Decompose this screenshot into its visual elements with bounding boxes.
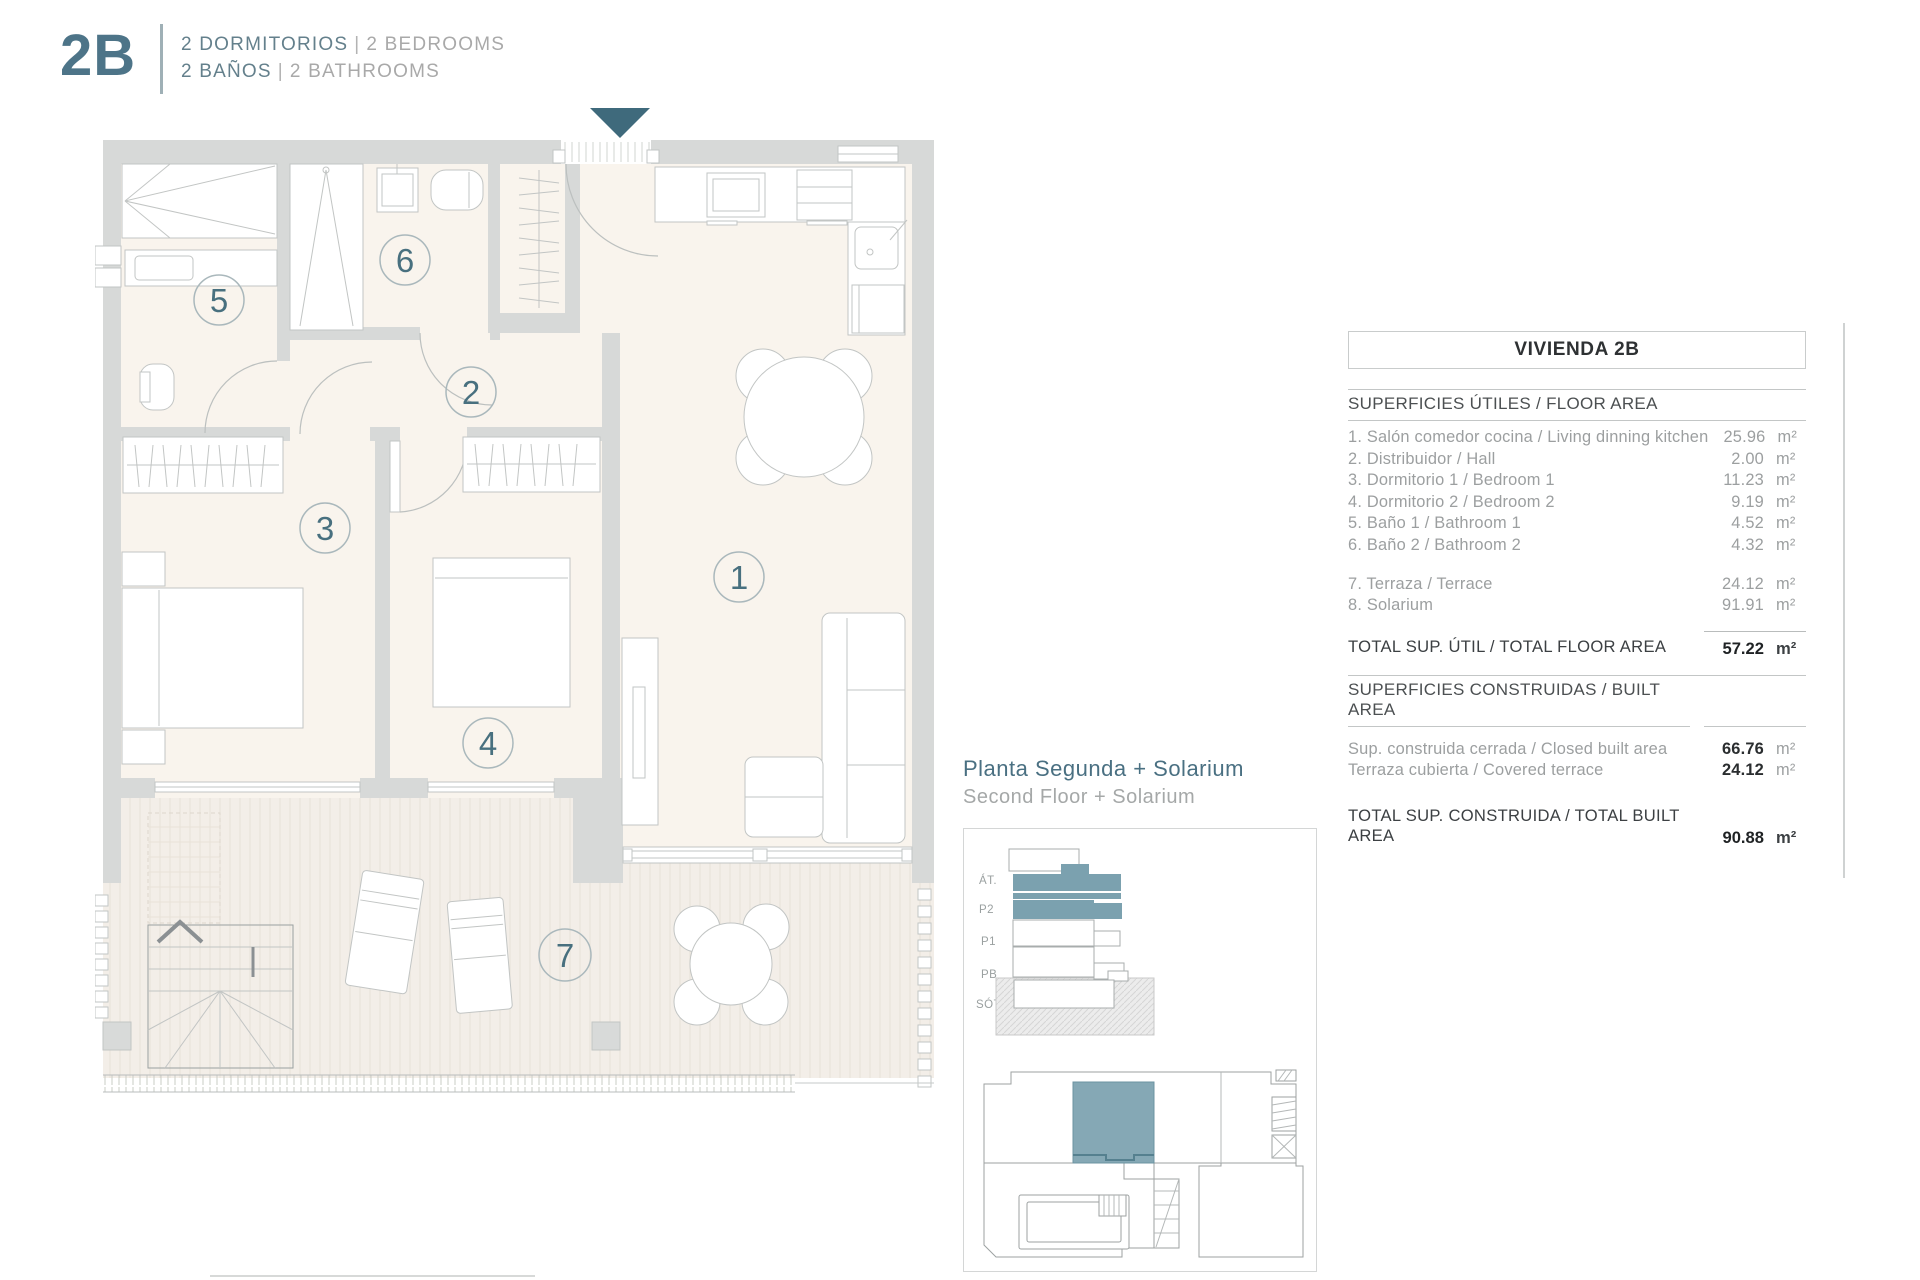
area-row: Terraza cubierta / Covered terrace24.12m… bbox=[1348, 760, 1806, 782]
area-row-label: Sup. construida cerrada / Closed built a… bbox=[1348, 739, 1704, 761]
floor-total-value: 57.22 bbox=[1704, 639, 1764, 659]
separator: | bbox=[272, 61, 290, 82]
area-row-label: 5. Baño 1 / Bathroom 1 bbox=[1348, 513, 1704, 535]
area-row: 1. Salón comedor cocina / Living dinning… bbox=[1348, 427, 1806, 449]
room-label-4: 4 bbox=[479, 725, 497, 762]
built-area-title-text: SUPERFICIES CONSTRUIDAS / BUILT AREA bbox=[1348, 680, 1690, 727]
floor-total-label: TOTAL SUP. ÚTIL / TOTAL FLOOR AREA bbox=[1348, 637, 1704, 659]
floor-plan-svg: 1 2 3 4 5 6 7 bbox=[95, 100, 955, 1100]
header-divider bbox=[160, 24, 163, 94]
room-label-6: 6 bbox=[396, 242, 414, 279]
area-row-value: 25.96 bbox=[1708, 427, 1765, 449]
dining-table bbox=[736, 349, 872, 485]
floor-total-unit: m² bbox=[1764, 639, 1806, 659]
room-label-3: 3 bbox=[316, 510, 334, 547]
area-row-value: 4.32 bbox=[1704, 535, 1764, 557]
area-row-unit: m² bbox=[1764, 574, 1806, 596]
area-row: 3. Dormitorio 1 / Bedroom 111.23m² bbox=[1348, 470, 1806, 492]
building-section: ÁT. P2 P1 PB SÓT. bbox=[974, 841, 1179, 1056]
area-row-unit: m² bbox=[1764, 470, 1806, 492]
entrance-arrow-icon bbox=[590, 108, 650, 138]
floor-name-en: Second Floor + Solarium bbox=[963, 783, 1244, 811]
room-label-7: 7 bbox=[556, 937, 574, 974]
location-diagrams: ÁT. P2 P1 PB SÓT. bbox=[963, 828, 1317, 1272]
area-row-value: 24.12 bbox=[1704, 574, 1764, 596]
built-total-row: TOTAL SUP. CONSTRUIDA / TOTAL BUILT AREA… bbox=[1348, 806, 1806, 848]
area-row: 4. Dormitorio 2 / Bedroom 29.19m² bbox=[1348, 492, 1806, 514]
floor-plan: 1 2 3 4 5 6 7 bbox=[95, 100, 955, 1100]
panel-title: VIVIENDA 2B bbox=[1348, 331, 1806, 369]
bedroom1-furniture bbox=[122, 437, 303, 764]
sun-lounger bbox=[447, 897, 513, 1013]
bathrooms-es: 2 BAÑOS bbox=[181, 61, 272, 82]
area-row-unit: m² bbox=[1764, 595, 1806, 617]
highlighted-atico bbox=[1013, 874, 1121, 891]
built-area-section-title: SUPERFICIES CONSTRUIDAS / BUILT AREA bbox=[1348, 676, 1806, 733]
level-label-p2: P2 bbox=[979, 904, 994, 916]
area-row-label: 1. Salón comedor cocina / Living dinning… bbox=[1348, 427, 1708, 449]
area-row-value: 66.76 bbox=[1704, 739, 1764, 761]
built-total-label: TOTAL SUP. CONSTRUIDA / TOTAL BUILT AREA bbox=[1348, 806, 1704, 848]
room-label-1: 1 bbox=[730, 559, 748, 596]
floor-name: Planta Segunda + Solarium Second Floor +… bbox=[963, 755, 1244, 811]
area-row-label: 7. Terraza / Terrace bbox=[1348, 574, 1704, 596]
level-label-p1: P1 bbox=[981, 936, 996, 948]
area-row-unit: m² bbox=[1764, 535, 1806, 557]
header-subtitle: 2 DORMITORIOS|2 BEDROOMS 2 BAÑOS|2 BATHR… bbox=[181, 31, 505, 85]
area-row-value: 24.12 bbox=[1704, 760, 1764, 782]
area-row: 8. Solarium91.91m² bbox=[1348, 595, 1806, 617]
built-area-title-rule bbox=[1704, 680, 1806, 727]
area-row-unit: m² bbox=[1764, 760, 1806, 782]
area-row-label: 3. Dormitorio 1 / Bedroom 1 bbox=[1348, 470, 1704, 492]
area-row-unit: m² bbox=[1764, 739, 1806, 761]
floor-total-value-wrap: 57.22m² bbox=[1704, 631, 1806, 659]
area-row-unit: m² bbox=[1764, 513, 1806, 535]
area-row-unit: m² bbox=[1764, 449, 1806, 471]
area-row-label: 4. Dormitorio 2 / Bedroom 2 bbox=[1348, 492, 1704, 514]
highlighted-p2 bbox=[1013, 900, 1094, 919]
floor-total-row: TOTAL SUP. ÚTIL / TOTAL FLOOR AREA 57.22… bbox=[1348, 631, 1806, 659]
area-row-label: Terraza cubierta / Covered terrace bbox=[1348, 760, 1704, 782]
area-row-label: 2. Distribuidor / Hall bbox=[1348, 449, 1704, 471]
area-table-panel: VIVIENDA 2B SUPERFICIES ÚTILES / FLOOR A… bbox=[1348, 331, 1806, 848]
area-row: 6. Baño 2 / Bathroom 24.32m² bbox=[1348, 535, 1806, 557]
room-label-2: 2 bbox=[462, 374, 480, 411]
room-label-5: 5 bbox=[210, 282, 228, 319]
bathrooms-en: 2 BATHROOMS bbox=[290, 61, 440, 82]
bottom-crop-line bbox=[210, 1275, 535, 1277]
area-row-value: 11.23 bbox=[1704, 470, 1764, 492]
header-bathrooms-line: 2 BAÑOS|2 BATHROOMS bbox=[181, 58, 505, 85]
area-row-value: 91.91 bbox=[1704, 595, 1764, 617]
floor-name-es: Planta Segunda + Solarium bbox=[963, 755, 1244, 783]
area-row-label: 6. Baño 2 / Bathroom 2 bbox=[1348, 535, 1704, 557]
area-row-value: 2.00 bbox=[1704, 449, 1764, 471]
area-row-label: 8. Solarium bbox=[1348, 595, 1704, 617]
floor-area-rows: 1. Salón comedor cocina / Living dinning… bbox=[1348, 421, 1806, 617]
key-plan bbox=[974, 1067, 1306, 1263]
panel-side-rule bbox=[1843, 323, 1845, 878]
level-label-pb: PB bbox=[981, 969, 997, 981]
area-row: 7. Terraza / Terrace24.12m² bbox=[1348, 574, 1806, 596]
highlighted-unit bbox=[1073, 1082, 1154, 1163]
area-row: 5. Baño 1 / Bathroom 14.52m² bbox=[1348, 513, 1806, 535]
separator: | bbox=[348, 34, 366, 55]
area-row-unit: m² bbox=[1765, 427, 1806, 449]
area-row: 2. Distribuidor / Hall2.00m² bbox=[1348, 449, 1806, 471]
area-row-unit: m² bbox=[1764, 492, 1806, 514]
bedrooms-es: 2 DORMITORIOS bbox=[181, 34, 348, 55]
built-total-unit: m² bbox=[1764, 828, 1806, 848]
level-label-atico: ÁT. bbox=[979, 874, 997, 887]
built-total-value: 90.88 bbox=[1704, 828, 1764, 848]
apartment-floor bbox=[103, 140, 934, 863]
area-row-value: 4.52 bbox=[1704, 513, 1764, 535]
built-total-value-wrap: 90.88m² bbox=[1704, 828, 1806, 848]
unit-title: 2B bbox=[60, 22, 136, 89]
bedrooms-en: 2 BEDROOMS bbox=[366, 34, 505, 55]
area-row-value: 9.19 bbox=[1704, 492, 1764, 514]
highlighted-solarium bbox=[1061, 864, 1089, 874]
built-area-rows: Sup. construida cerrada / Closed built a… bbox=[1348, 733, 1806, 782]
floor-area-section-title: SUPERFICIES ÚTILES / FLOOR AREA bbox=[1348, 390, 1806, 421]
header-bedrooms-line: 2 DORMITORIOS|2 BEDROOMS bbox=[181, 31, 505, 58]
area-row: Sup. construida cerrada / Closed built a… bbox=[1348, 739, 1806, 761]
